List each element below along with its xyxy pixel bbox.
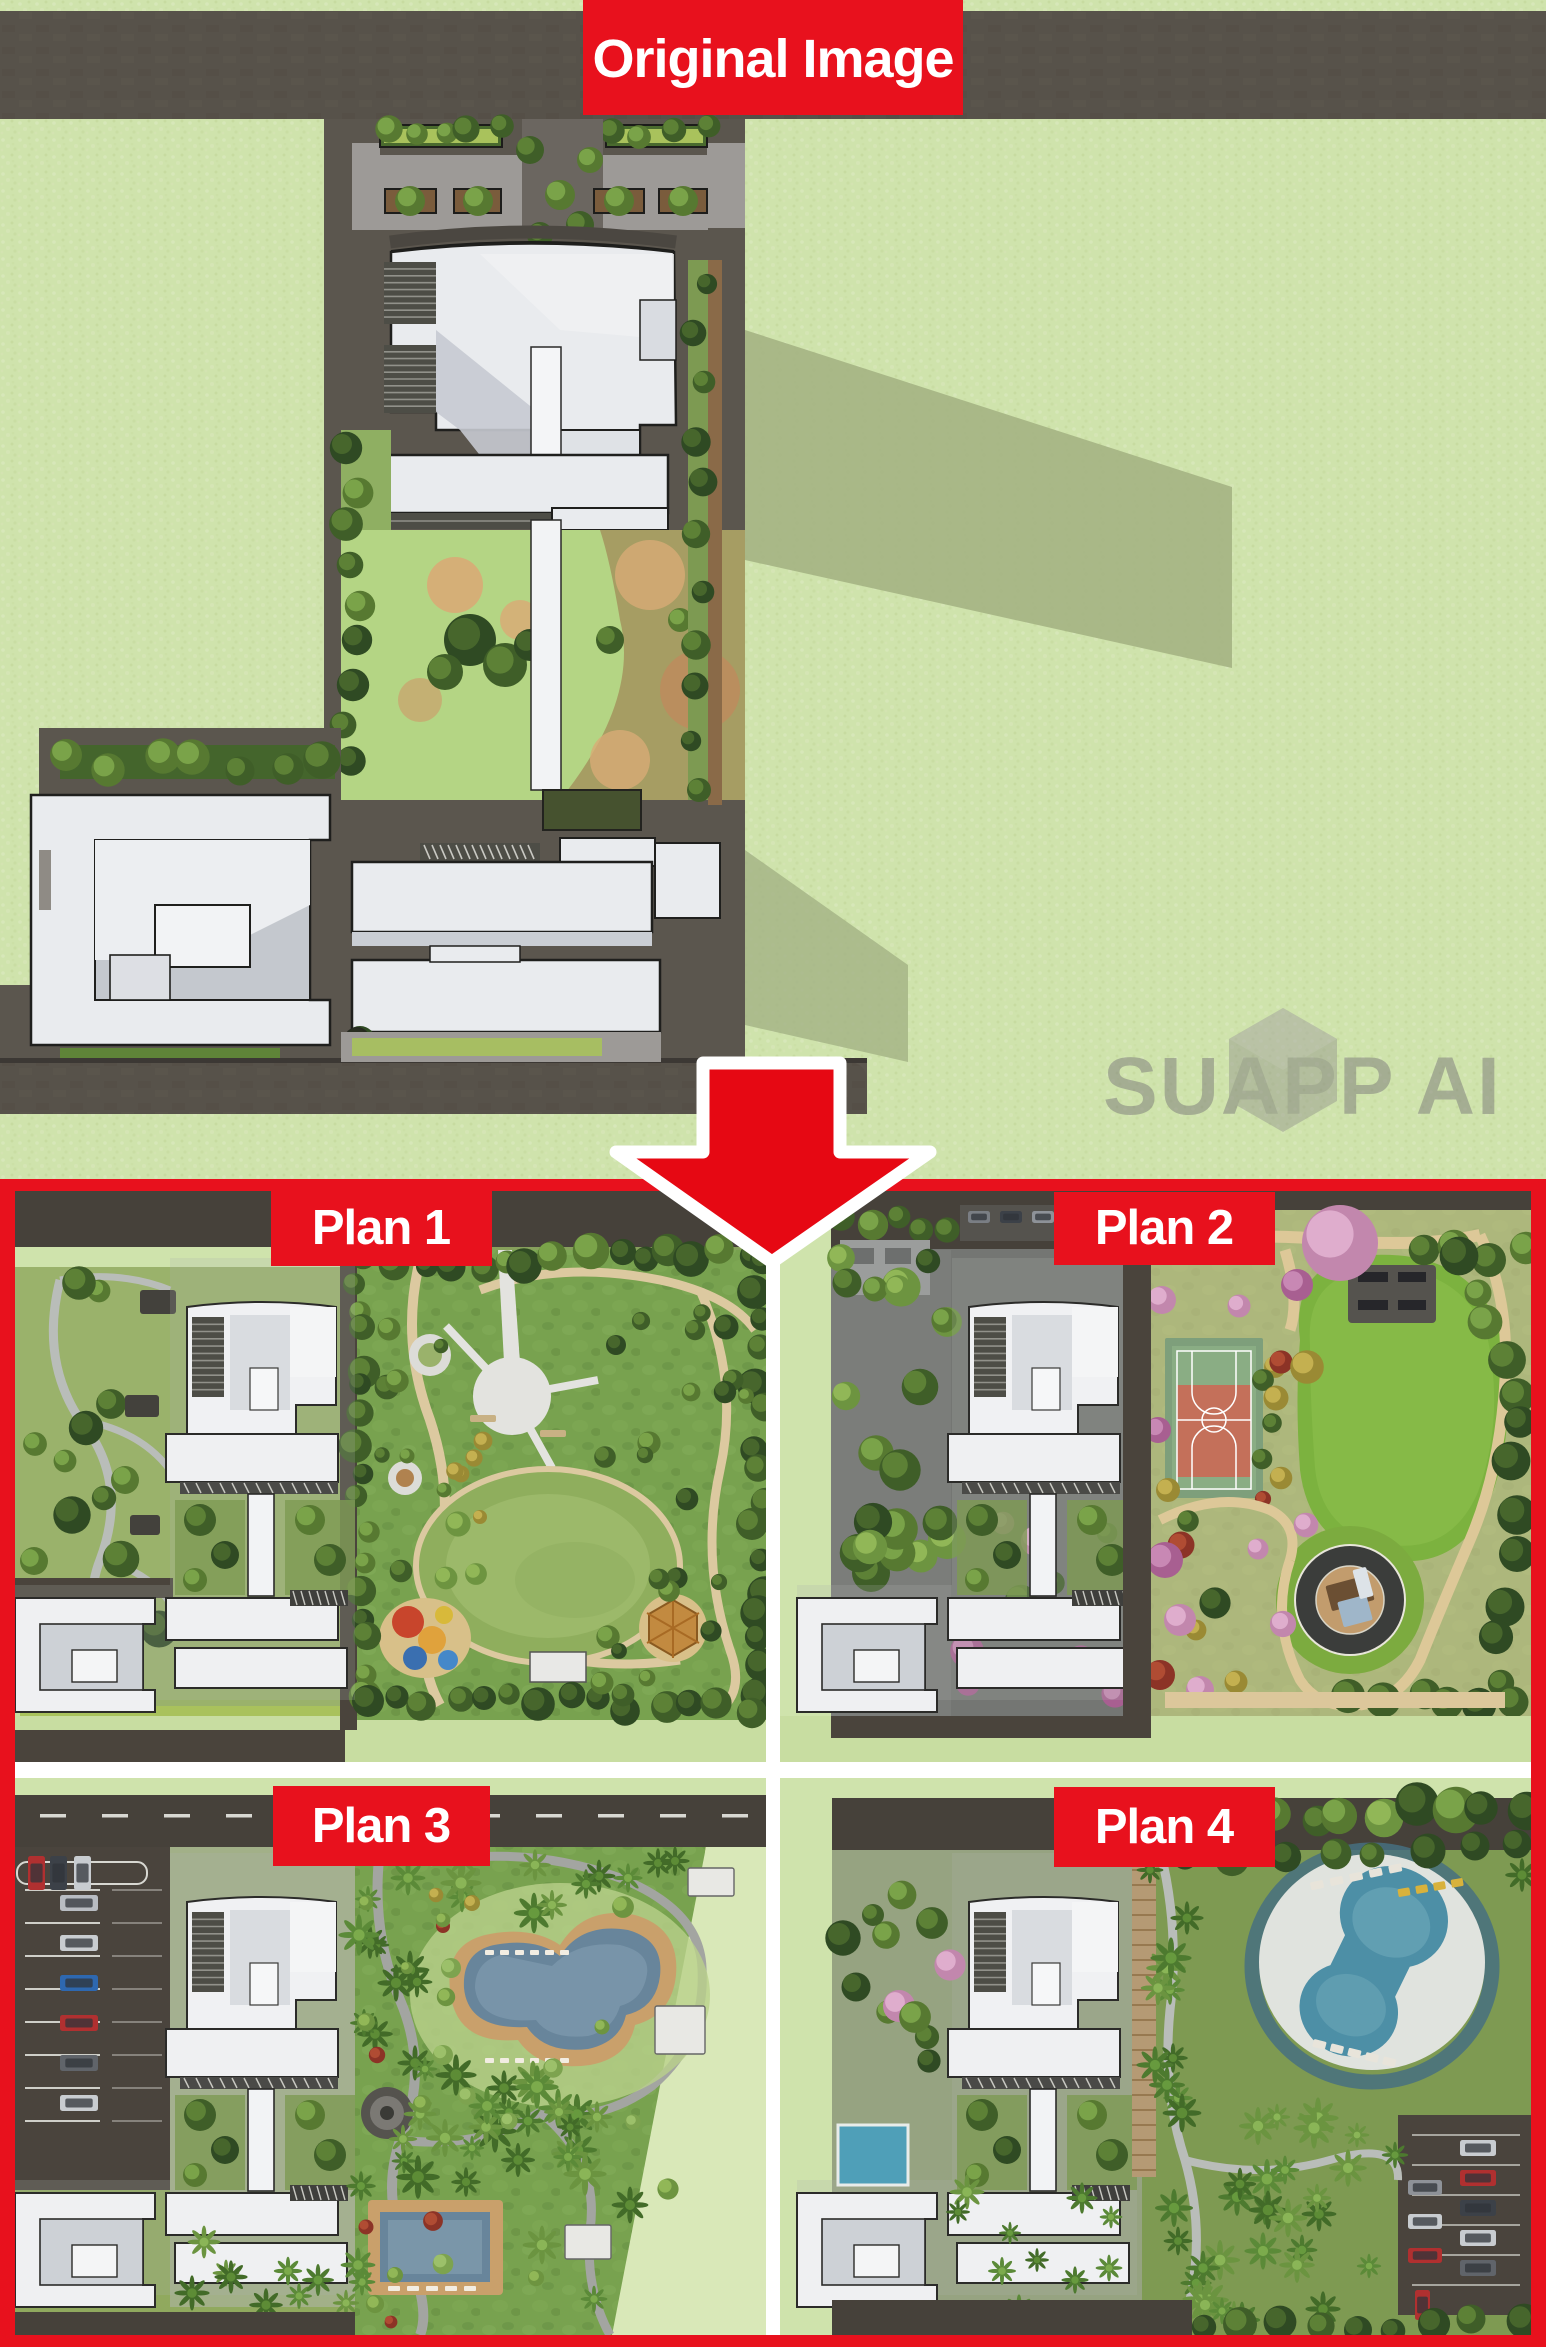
svg-text:Plan 1: Plan 1 [312, 1201, 450, 1255]
svg-text:SUAPP AI: SUAPP AI [1103, 1041, 1502, 1132]
svg-text:Plan 2: Plan 2 [1095, 1201, 1233, 1255]
svg-text:Plan 3: Plan 3 [312, 1799, 450, 1853]
svg-text:Original Image: Original Image [592, 29, 953, 89]
svg-text:Plan 4: Plan 4 [1095, 1800, 1234, 1854]
